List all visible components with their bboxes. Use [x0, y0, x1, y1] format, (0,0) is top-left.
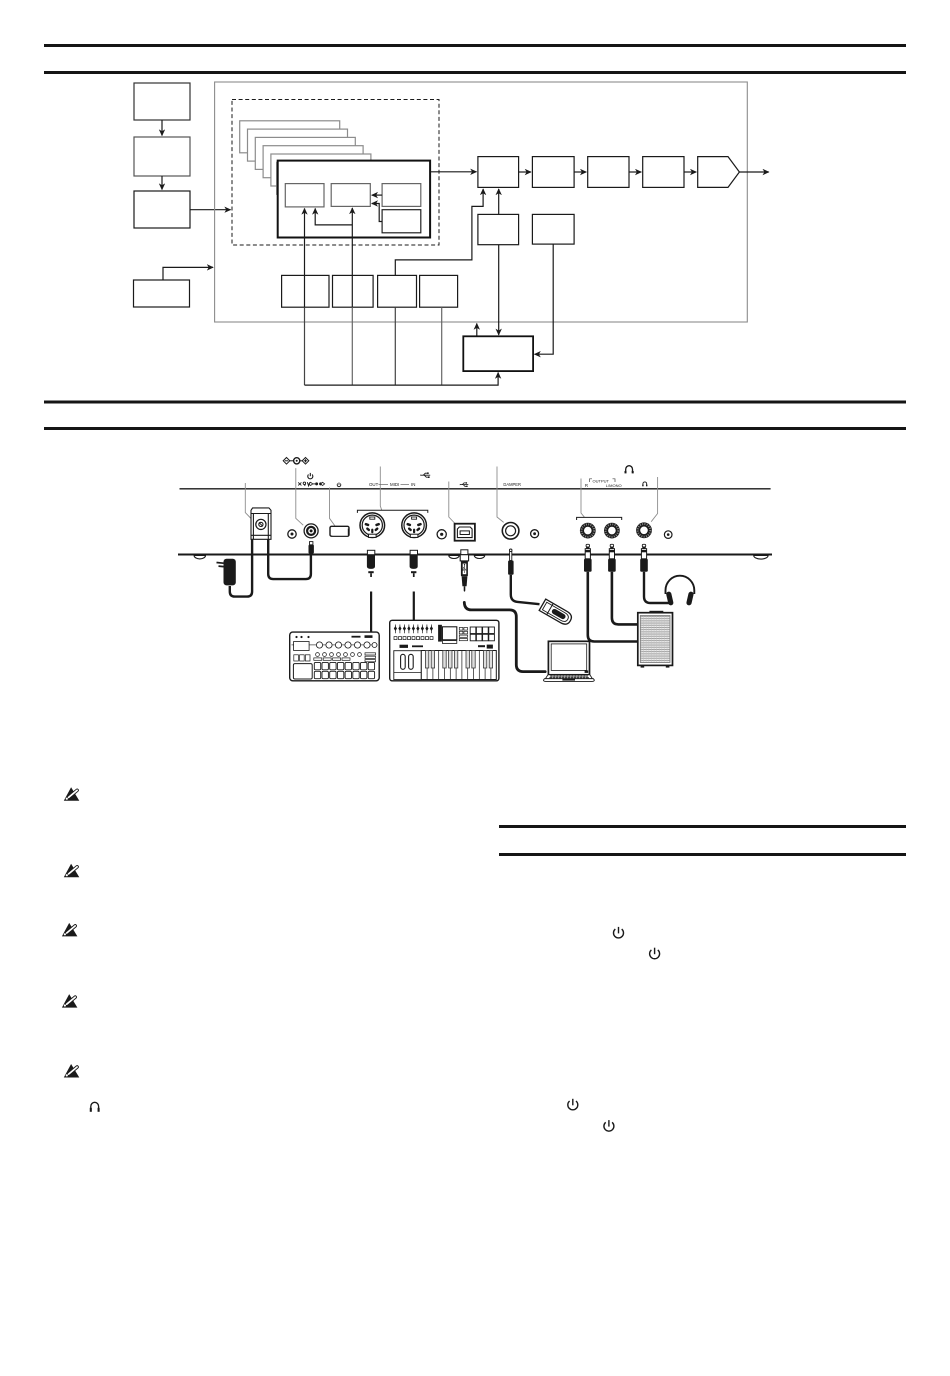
svg-text:L/MONO: L/MONO: [606, 483, 622, 488]
svg-text:R: R: [585, 483, 588, 488]
svg-text:OUT: OUT: [369, 482, 379, 487]
svg-text:IN: IN: [411, 482, 415, 487]
svg-text:DAMPER: DAMPER: [503, 482, 521, 487]
svg-text:MIDI: MIDI: [390, 482, 399, 487]
